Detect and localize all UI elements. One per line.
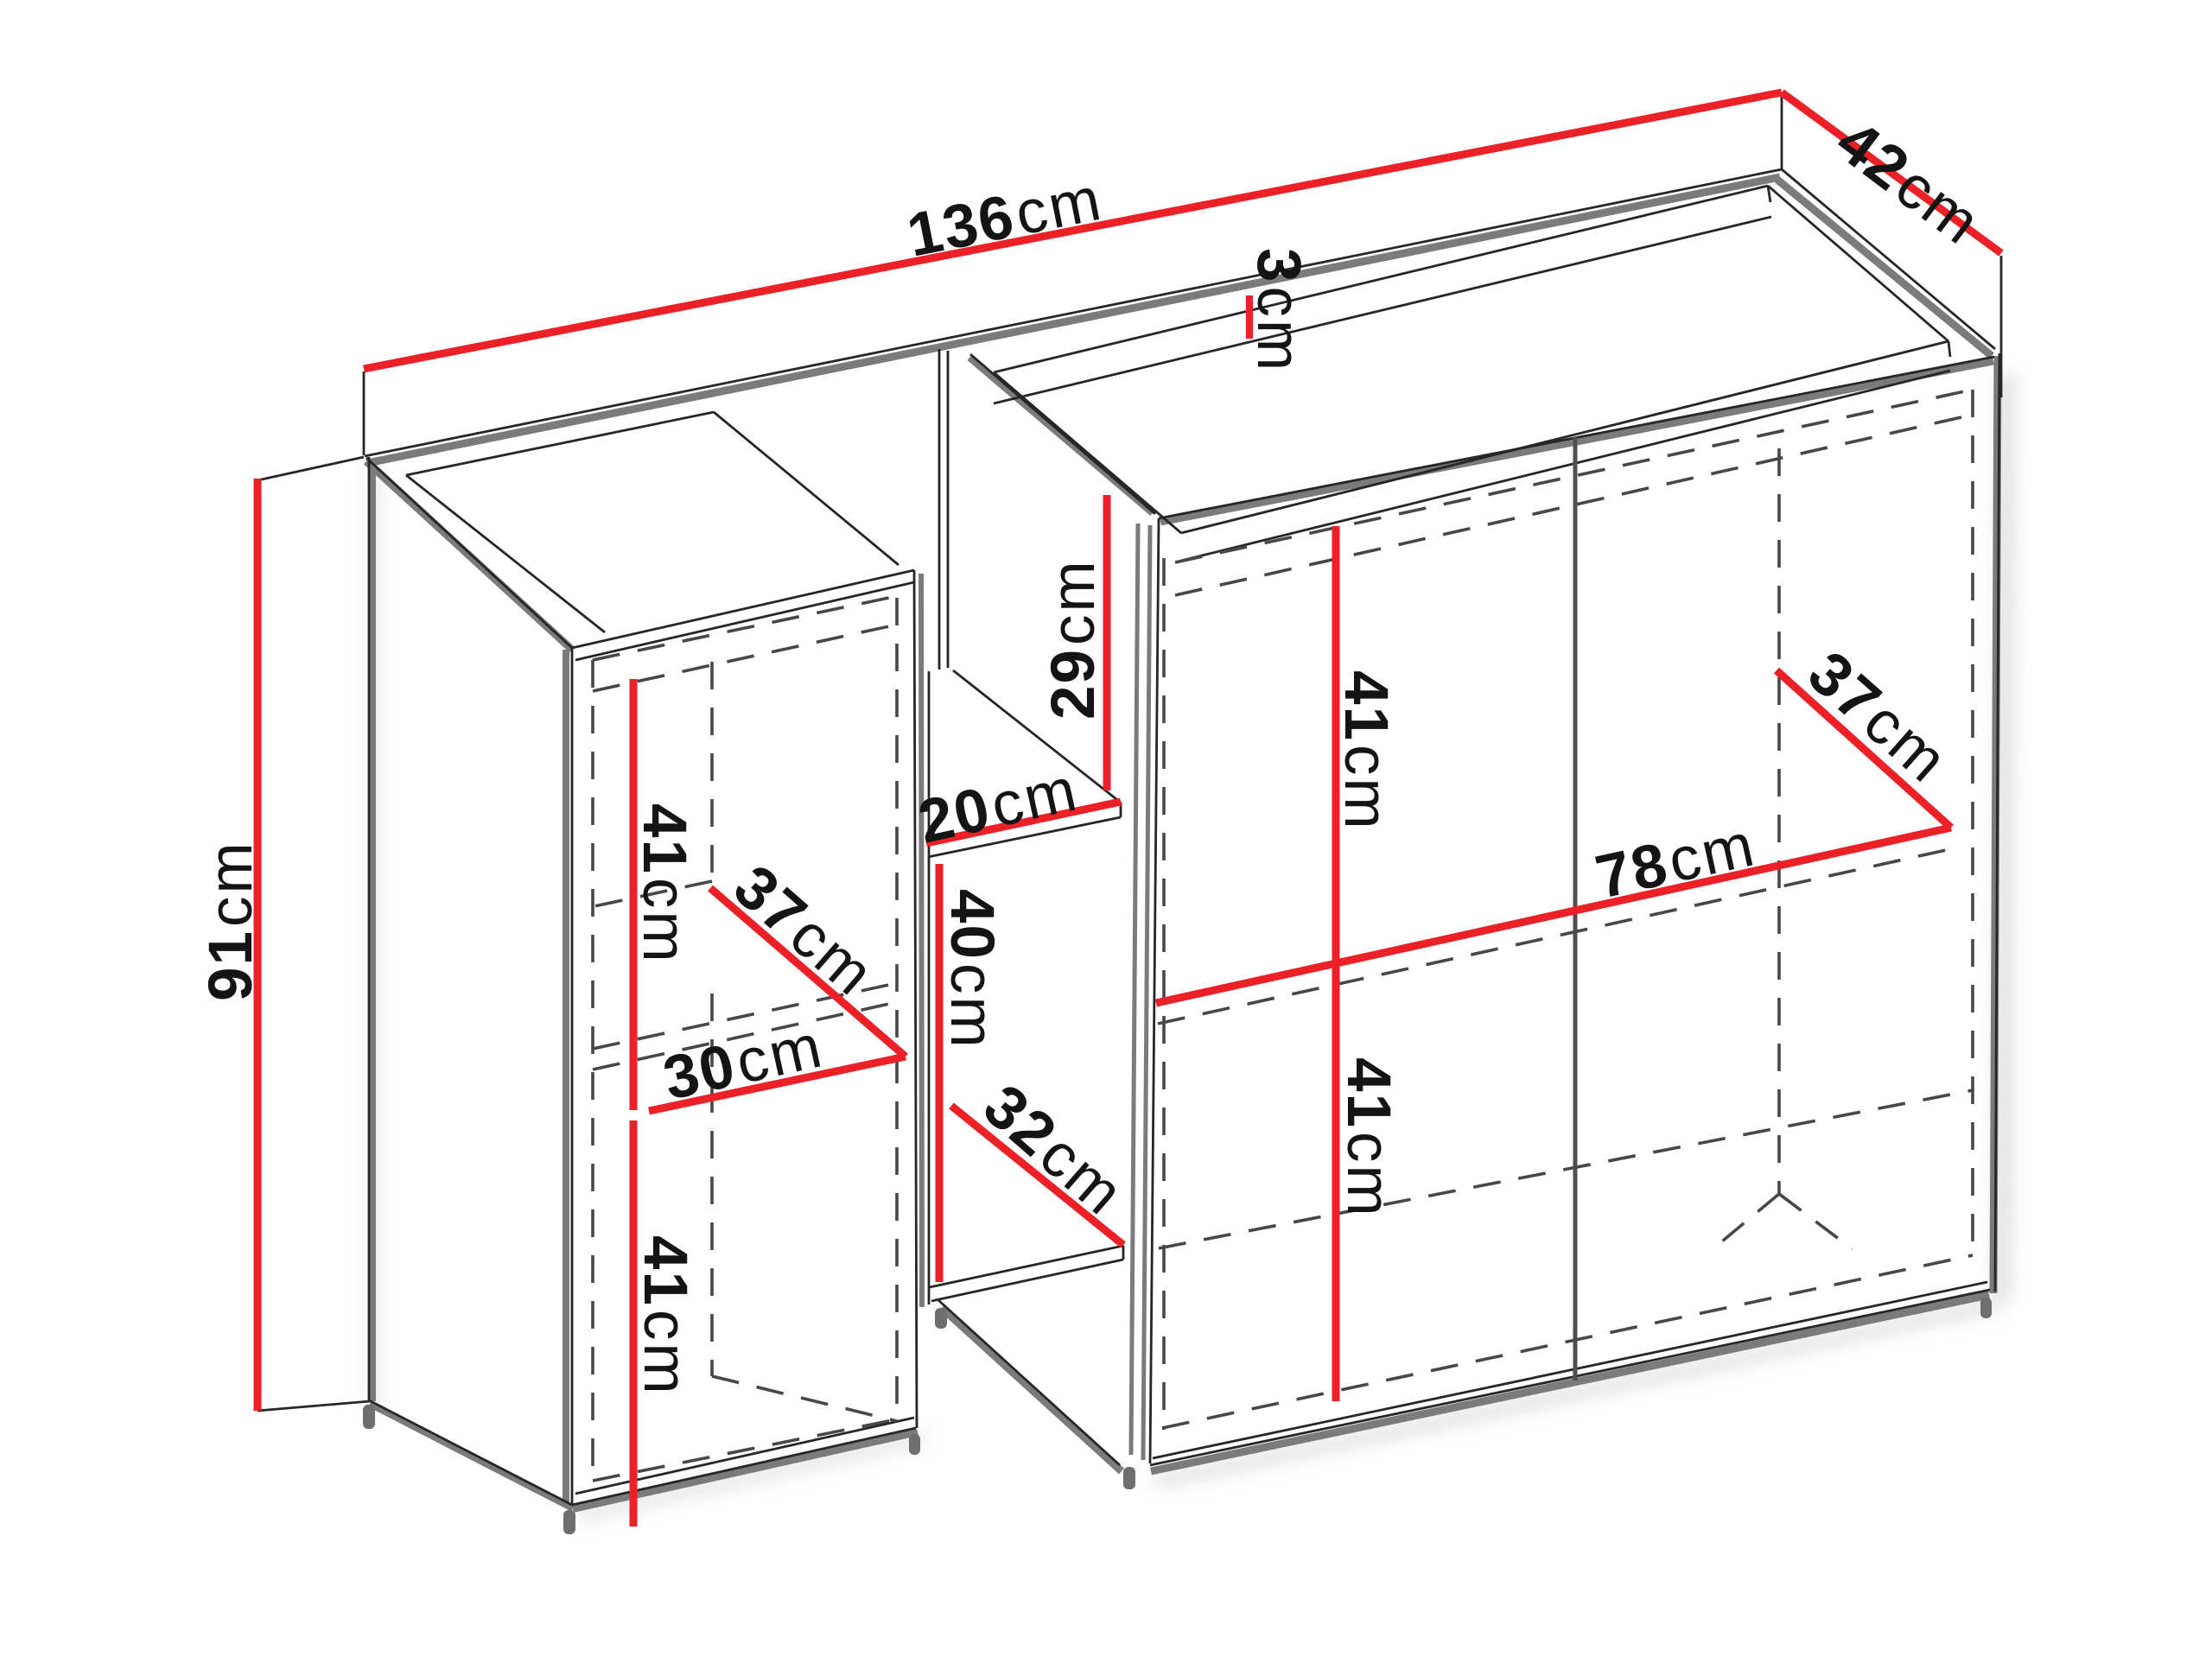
svg-text:40cm: 40cm — [938, 889, 1006, 1050]
svg-text:41cm: 41cm — [1332, 670, 1400, 832]
svg-text:29cm: 29cm — [1039, 558, 1108, 720]
svg-text:41cm: 41cm — [630, 803, 698, 965]
svg-text:41cm: 41cm — [631, 1235, 699, 1397]
svg-text:3cm: 3cm — [1244, 248, 1313, 373]
svg-text:41cm: 41cm — [1334, 1057, 1402, 1219]
svg-text:91cm: 91cm — [197, 840, 265, 1001]
